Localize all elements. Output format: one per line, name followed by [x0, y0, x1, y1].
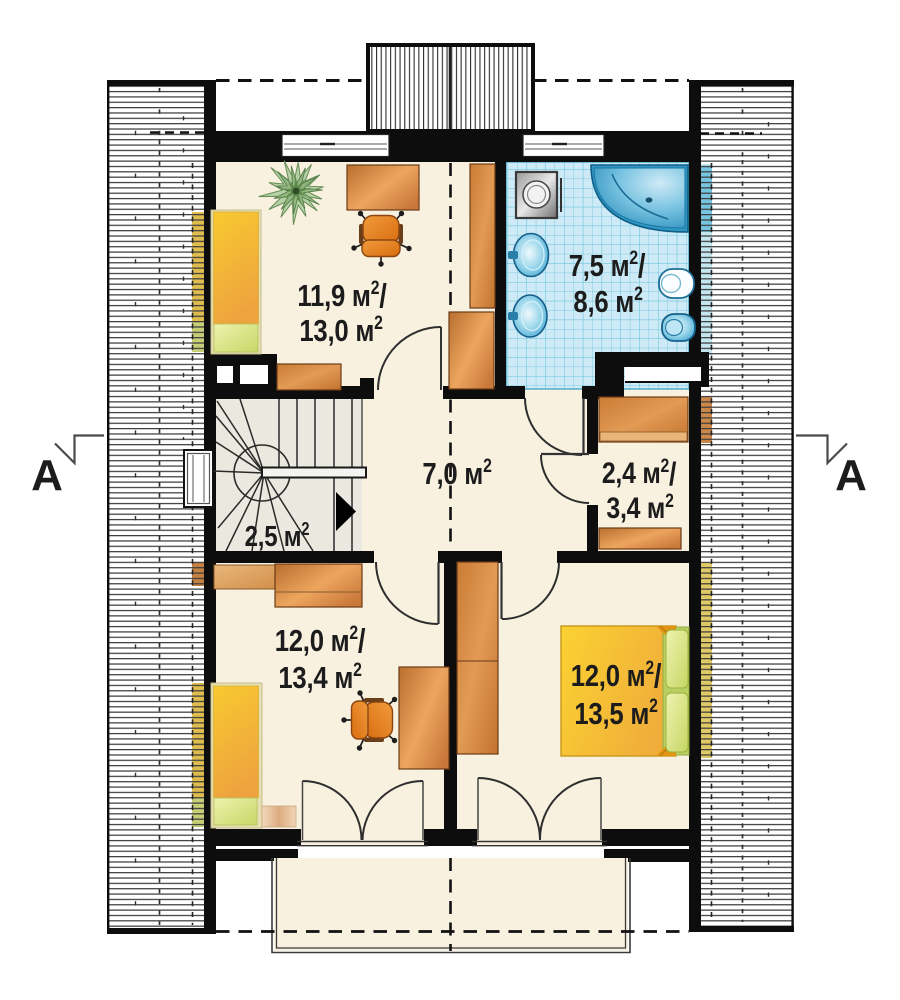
svg-text:2,5 м2: 2,5 м2 [245, 519, 310, 553]
svg-text:8,6 м2: 8,6 м2 [573, 283, 642, 320]
svg-text:A: A [835, 451, 867, 500]
svg-text:A: A [31, 451, 63, 500]
svg-text:7,0 м2: 7,0 м2 [422, 455, 491, 492]
svg-text:13,5 м2: 13,5 м2 [574, 695, 657, 732]
svg-text:13,0 м2: 13,0 м2 [299, 312, 382, 349]
svg-text:3,4 м2: 3,4 м2 [606, 490, 673, 525]
svg-text:13,4 м2: 13,4 м2 [278, 659, 361, 696]
